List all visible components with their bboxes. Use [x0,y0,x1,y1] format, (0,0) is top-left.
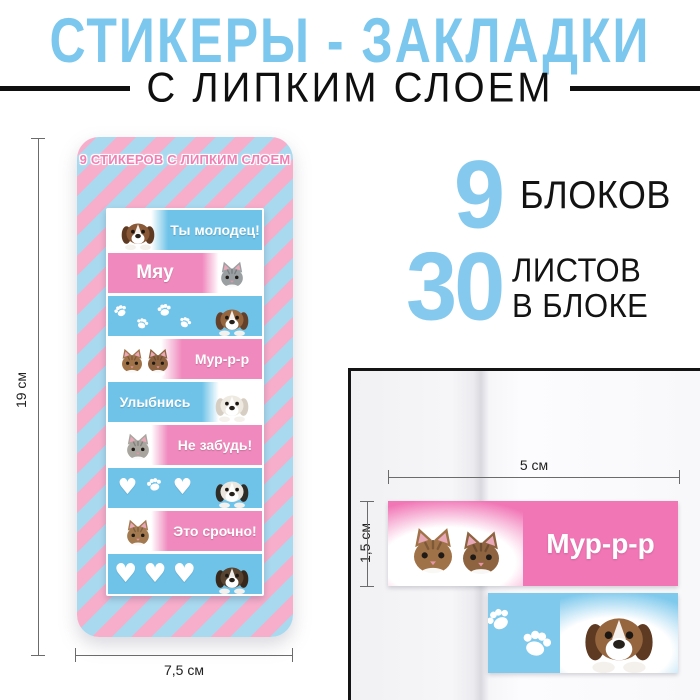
heart-icon: ♥ [173,477,193,499]
sticker-strip-8: Это срочно! [108,511,262,551]
kitten-icon [207,259,257,293]
subtitle-rule-left [0,86,130,91]
puppy-icon [113,216,163,250]
sticker-text: Мур-р-р [182,351,262,367]
puppy-photo [202,468,262,508]
kitten-icon [138,345,178,379]
width-dimension-label: 7,5 см [75,662,293,678]
dimension-tick [31,655,45,656]
puppy-photo [202,382,262,422]
heart-icon-row: ♥ ♥ ♥ [108,561,202,587]
height-dimension-line [38,138,39,655]
sticker-strip-4: Мур-р-р [108,339,262,379]
sticker-text: Мяу [108,262,202,284]
heart-icon: ♥ [173,561,196,587]
paw-icon-row [108,309,202,324]
sticker-text: Не забудь! [168,437,262,453]
heart-icon: ♥ [114,561,137,587]
subtitle-rule-right [570,86,700,91]
sticker-strip-5: Улыбнись [108,382,262,422]
notebook-closeup-photo: 5 см 1,5 см Мур-р-р [348,368,700,700]
kittens-photo [388,501,523,586]
closeup-sticker-text: Мур-р-р [523,528,678,560]
heart-paw-icon-row: ♥ ♥ [108,477,202,499]
paw-icon [145,475,164,494]
kitten-icon [113,517,163,551]
paw-icon [517,623,556,662]
sticker-strip-7: ♥ ♥ [108,468,262,508]
paw-icon [111,301,129,319]
dimension-tick [360,501,374,502]
sheets-label-line1: ЛИСТОВ [512,252,648,288]
sticker-stack: Ты молодец! Мяу [106,208,264,596]
sheets-label: ЛИСТОВ В БЛОКЕ [512,252,648,324]
kitten-photo [108,425,168,465]
paw-icon-row [488,617,560,649]
dimension-tick [31,138,45,139]
kittens-photo [108,339,182,379]
paw-icon [134,314,150,330]
puppy-photo [202,554,262,594]
closeup-height-label: 1,5 см [357,505,373,581]
paw-icon [177,313,194,330]
dimension-tick [388,470,389,484]
closeup-width-line [388,477,680,478]
sticker-strip-9: ♥ ♥ ♥ [108,554,262,594]
closeup-width-label: 5 см [388,457,680,473]
width-dimension-line [75,655,293,656]
sheets-count: 30 [406,248,492,327]
bookmark-card: 9 СТИКЕРОВ С ЛИПКИМ СЛОЕМ Ты молодец! Мя… [77,137,293,637]
dimension-tick [679,470,680,484]
sticker-text: Ты молодец! [168,222,262,238]
sheets-label-line2: В БЛОКЕ [512,288,648,324]
puppy-photo [202,296,262,336]
puppy-photo [108,210,168,250]
kitten-photo [108,511,168,551]
kitten-icon [113,431,163,465]
closeup-pink-sticker: Мур-р-р [388,501,678,586]
height-dimension-label: 19 см [13,355,29,425]
kitten-icon [445,524,517,586]
blocks-label: БЛОКОВ [520,175,671,217]
spec-blocks: 9 БЛОКОВ [430,158,671,233]
heart-icon: ♥ [143,561,166,587]
paw-icon [488,601,516,636]
puppy-icon [207,302,257,336]
sticker-strip-3 [108,296,262,336]
closeup-height-line [367,501,368,587]
closeup-blue-sticker [488,593,678,673]
puppy-icon [207,560,257,594]
sticker-strip-6: Не забудь! [108,425,262,465]
subtitle-row: С ЛИПКИМ СЛОЕМ [0,68,700,108]
dimension-tick [75,648,76,662]
sticker-strip-2: Мяу [108,253,262,293]
sticker-strip-1: Ты молодец! [108,210,262,250]
card-label: 9 СТИКЕРОВ С ЛИПКИМ СЛОЕМ [77,152,293,167]
puppy-photo [560,593,678,673]
puppy-icon [569,603,669,673]
dimension-tick [360,586,374,587]
blocks-count: 9 [430,156,502,235]
puppy-icon [207,474,257,508]
product-infographic: СТИКЕРЫ - ЗАКЛАДКИ С ЛИПКИМ СЛОЕМ 9 СТИК… [0,0,700,700]
sticker-text: Это срочно! [168,523,262,539]
page-subtitle: С ЛИПКИМ СЛОЕМ [146,64,553,111]
sticker-text: Улыбнись [108,394,202,410]
spec-sheets: 30 ЛИСТОВ В БЛОКЕ [406,250,648,325]
heart-icon: ♥ [118,477,138,499]
puppy-icon [207,388,257,422]
paw-icon [156,300,173,317]
dimension-tick [292,648,293,662]
kitten-photo [202,253,262,293]
